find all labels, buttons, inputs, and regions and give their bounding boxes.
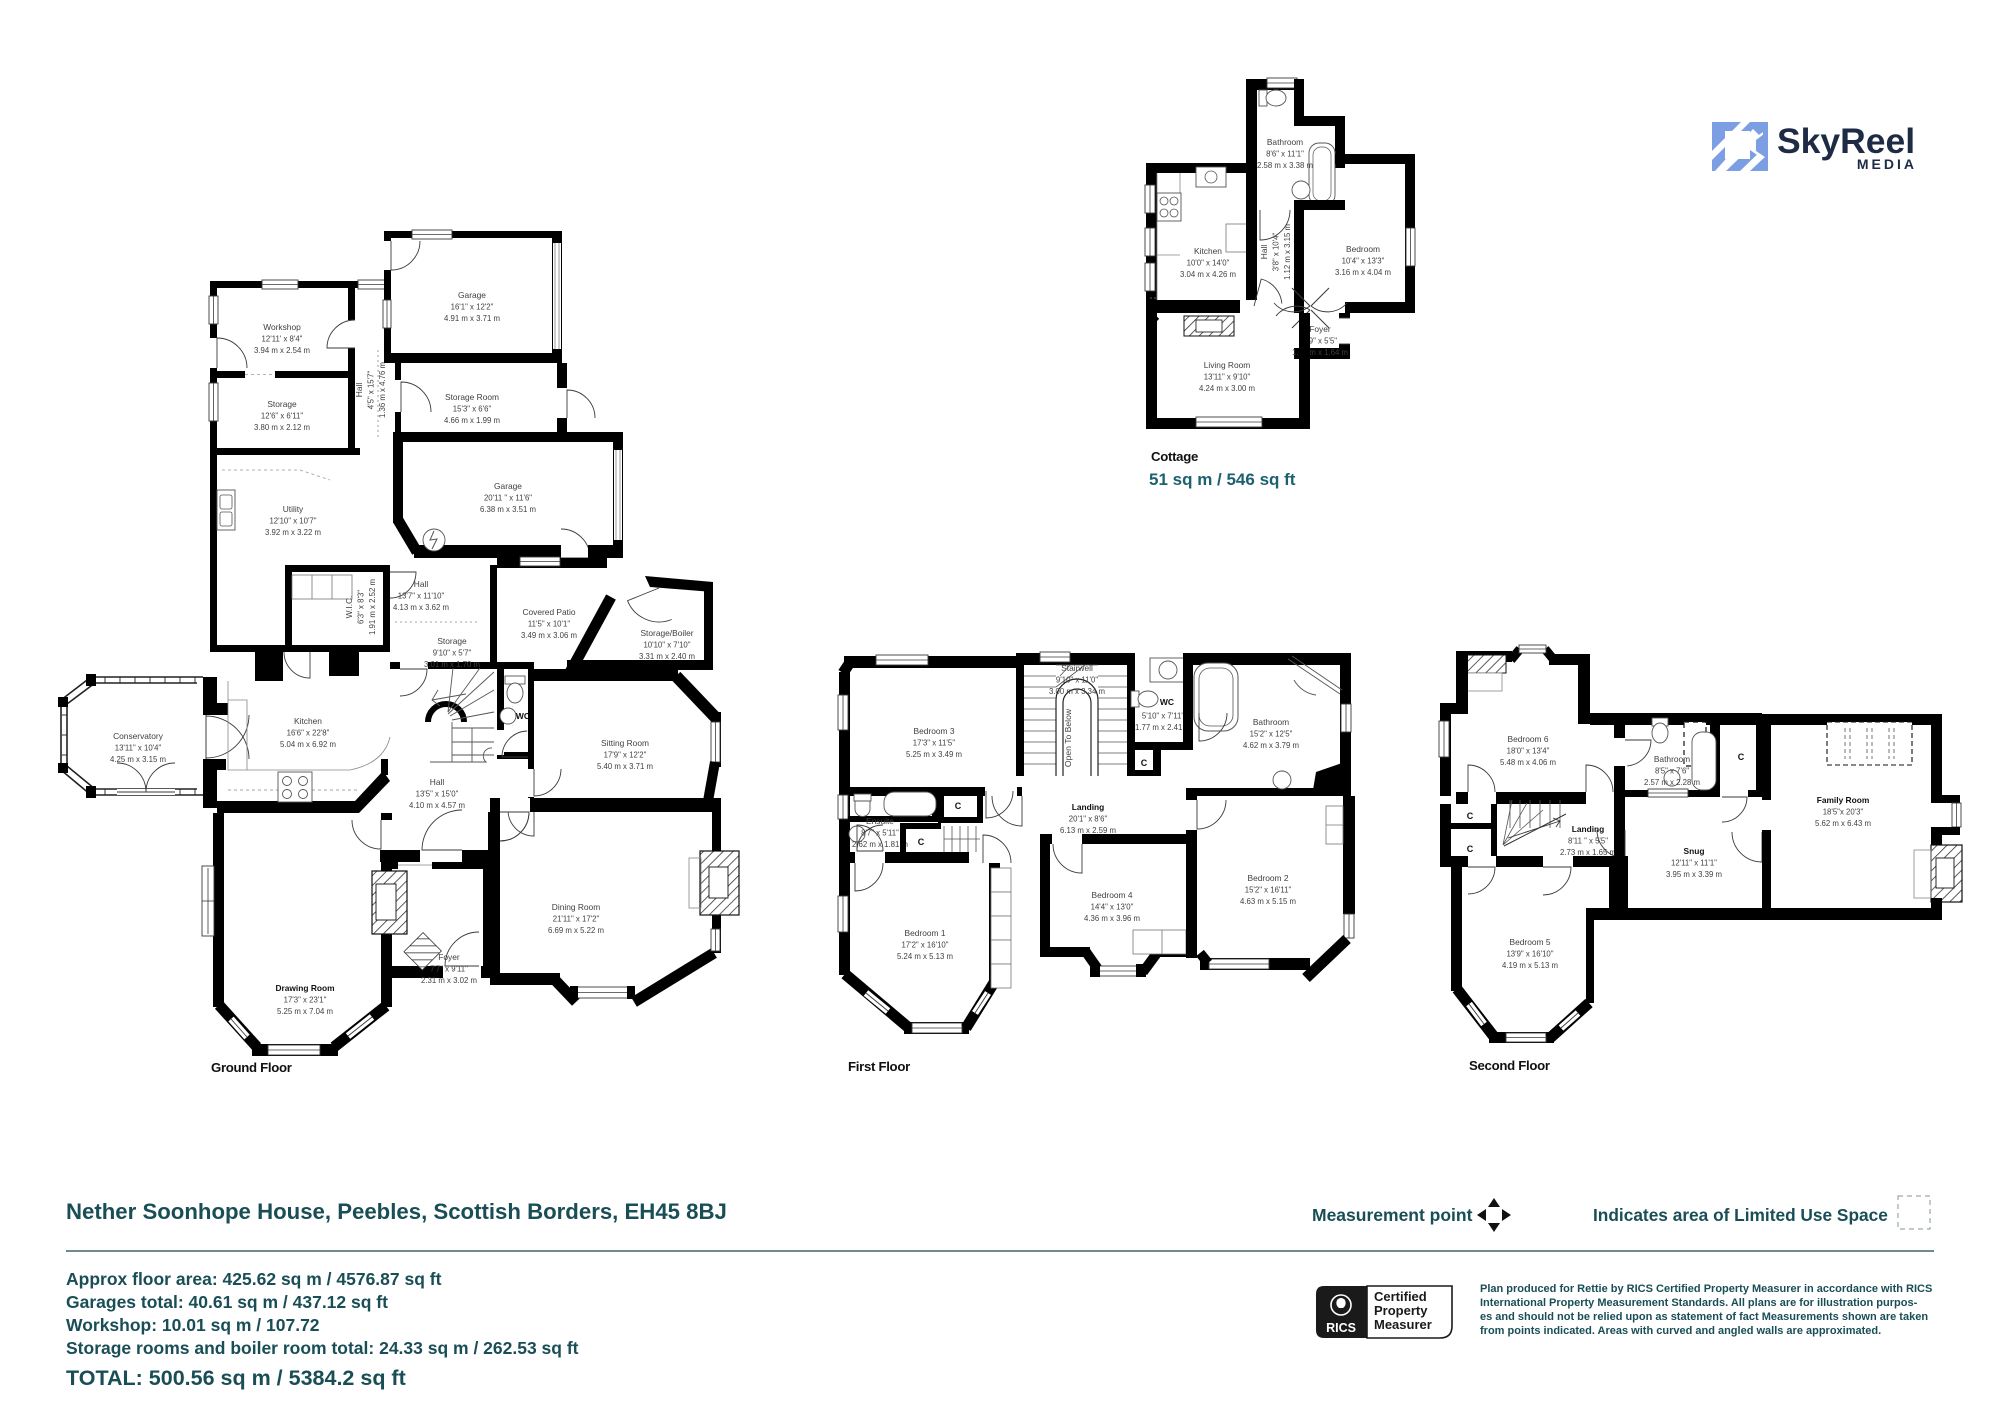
- svg-text:6.69 m x 5.22 m: 6.69 m x 5.22 m: [548, 926, 604, 935]
- svg-text:Conservatory: Conservatory: [113, 731, 164, 741]
- svg-text:3.01 m x 1.70 m: 3.01 m x 1.70 m: [424, 660, 480, 669]
- svg-text:4.24 m x 3.00 m: 4.24 m x 3.00 m: [1199, 384, 1255, 393]
- svg-text:3.31 m x 2.40 m: 3.31 m x 2.40 m: [639, 652, 695, 661]
- svg-text:Second Floor: Second Floor: [1469, 1058, 1550, 1073]
- svg-text:13'5" x 15'0": 13'5" x 15'0": [416, 790, 459, 799]
- svg-text:from points indicated. Areas w: from points indicated. Areas with curved…: [1480, 1325, 1881, 1337]
- svg-text:5.25 m x 7.04 m: 5.25 m x 7.04 m: [277, 1007, 333, 1016]
- svg-text:Hall: Hall: [414, 579, 429, 589]
- svg-text:4.36 m x 3.96 m: 4.36 m x 3.96 m: [1084, 914, 1140, 923]
- svg-text:Cottage: Cottage: [1151, 449, 1198, 464]
- svg-text:51 sq m / 546 sq ft: 51 sq m / 546 sq ft: [1149, 470, 1296, 489]
- svg-text:Snug: Snug: [1684, 846, 1705, 856]
- svg-text:2.62 m x 1.81 m: 2.62 m x 1.81 m: [852, 840, 908, 849]
- svg-text:Certified: Certified: [1374, 1289, 1427, 1304]
- svg-text:17'3" x 23'1": 17'3" x 23'1": [284, 996, 327, 1005]
- svg-text:Utility: Utility: [283, 504, 304, 514]
- svg-text:5.24 m x 5.13 m: 5.24 m x 5.13 m: [897, 952, 953, 961]
- svg-text:Stairwell: Stairwell: [1061, 663, 1093, 673]
- svg-text:5.62 m x 6.43 m: 5.62 m x 6.43 m: [1815, 819, 1871, 828]
- svg-text:12'11" x 11'1": 12'11" x 11'1": [1671, 859, 1717, 868]
- svg-text:Ground Floor: Ground Floor: [211, 1060, 292, 1075]
- svg-text:Nether Soonhope House, Peebles: Nether Soonhope House, Peebles, Scottish…: [66, 1199, 727, 1224]
- svg-text:Measurer: Measurer: [1374, 1317, 1432, 1332]
- svg-text:12'6" x 6'11": 12'6" x 6'11": [261, 412, 303, 421]
- svg-text:4.66 m x 1.99 m: 4.66 m x 1.99 m: [444, 416, 500, 425]
- svg-text:Bedroom 6: Bedroom 6: [1508, 734, 1549, 744]
- svg-text:6'3" x 8'3": 6'3" x 8'3": [357, 590, 366, 624]
- svg-text:10'4" x 13'3": 10'4" x 13'3": [1342, 257, 1385, 266]
- svg-text:18'5"x 20'3": 18'5"x 20'3": [1823, 808, 1864, 817]
- svg-text:Storage: Storage: [437, 636, 467, 646]
- svg-text:Approx floor area: 425.62 sq m: Approx floor area: 425.62 sq m / 4576.87…: [66, 1269, 442, 1289]
- svg-text:Storage: Storage: [267, 399, 297, 409]
- svg-text:15'3" x 6'6": 15'3" x 6'6": [453, 405, 492, 414]
- svg-text:Storage rooms and boiler room: Storage rooms and boiler room total: 24.…: [66, 1338, 579, 1358]
- svg-text:Storage/Boiler: Storage/Boiler: [640, 628, 693, 638]
- svg-text:12'10" x 10'7": 12'10" x 10'7": [269, 517, 316, 526]
- svg-text:WC: WC: [516, 711, 530, 721]
- svg-text:Bedroom 2: Bedroom 2: [1248, 873, 1289, 883]
- svg-text:C: C: [1738, 752, 1745, 762]
- svg-text:TOTAL: 500.56 sq m / 5384.2 sq: TOTAL: 500.56 sq m / 5384.2 sq ft: [66, 1366, 406, 1390]
- svg-text:3.80 m x 2.12 m: 3.80 m x 2.12 m: [254, 423, 310, 432]
- svg-text:15'2" x 16'11": 15'2" x 16'11": [1245, 886, 1292, 895]
- svg-text:Bedroom 4: Bedroom 4: [1092, 890, 1133, 900]
- svg-text:Workshop: Workshop: [263, 322, 301, 332]
- svg-text:Plan produced for Rettie by RI: Plan produced for Rettie by RICS Certifi…: [1480, 1283, 1932, 1295]
- svg-text:14'4" x 13'0": 14'4" x 13'0": [1091, 903, 1134, 912]
- svg-text:Ensuite: Ensuite: [866, 816, 894, 826]
- svg-text:20'11 " x 11'6": 20'11 " x 11'6": [484, 494, 532, 503]
- svg-text:17'2" x 16'10": 17'2" x 16'10": [901, 941, 948, 950]
- svg-text:10'0" x 14'0": 10'0" x 14'0": [1187, 259, 1230, 268]
- svg-text:5'10" x 7'11": 5'10" x 7'11": [1142, 712, 1184, 721]
- svg-text:Garage: Garage: [458, 290, 486, 300]
- svg-text:2.58 m x 3.38 m: 2.58 m x 3.38 m: [1257, 161, 1313, 170]
- svg-text:Landing: Landing: [1072, 802, 1105, 812]
- svg-text:3'8" x 10'4": 3'8" x 10'4": [1272, 233, 1281, 272]
- svg-text:Hall: Hall: [430, 777, 445, 787]
- svg-text:11'5" x 10'1": 11'5" x 10'1": [528, 620, 570, 629]
- svg-text:1.12 m x 3.15 m: 1.12 m x 3.15 m: [1283, 224, 1292, 280]
- svg-text:Hall: Hall: [1259, 245, 1269, 260]
- svg-text:Sitting Room: Sitting Room: [601, 738, 649, 748]
- svg-text:13'11" x 9'10": 13'11" x 9'10": [1204, 373, 1251, 382]
- svg-text:Drawing Room: Drawing Room: [275, 983, 334, 993]
- svg-text:Bedroom 5: Bedroom 5: [1510, 937, 1551, 947]
- svg-text:Open To Below: Open To Below: [1063, 708, 1073, 767]
- svg-text:Kitchen: Kitchen: [294, 716, 322, 726]
- svg-text:6.38 m x 3.51 m: 6.38 m x 3.51 m: [480, 505, 536, 514]
- svg-text:8'5" x 7'6": 8'5" x 7'6": [1655, 767, 1689, 776]
- svg-text:8'11 " x 5'5": 8'11 " x 5'5": [1568, 837, 1608, 846]
- svg-text:Storage Room: Storage Room: [445, 392, 499, 402]
- svg-text:SkyReel: SkyReel: [1777, 121, 1915, 161]
- svg-text:Workshop: 10.01 sq m / 107.72: Workshop: 10.01 sq m / 107.72: [66, 1315, 320, 1335]
- svg-text:International Property Measur: International Property Measurement Stand…: [1480, 1297, 1918, 1309]
- svg-text:C: C: [955, 801, 962, 811]
- svg-text:4.62 m x 3.79 m: 4.62 m x 3.79 m: [1243, 741, 1299, 750]
- svg-text:21'11" x 17'2": 21'11" x 17'2": [553, 915, 600, 924]
- svg-text:Landing: Landing: [1572, 824, 1605, 834]
- svg-text:Living Room: Living Room: [1204, 360, 1251, 370]
- svg-text:4.13 m x 3.62 m: 4.13 m x 3.62 m: [393, 603, 449, 612]
- svg-text:8'7" x 5'11": 8'7" x 5'11": [861, 829, 899, 838]
- svg-text:7'7" x 9'11": 7'7" x 9'11": [430, 965, 468, 974]
- svg-text:Measurement point: Measurement point: [1312, 1205, 1473, 1225]
- svg-text:MEDIA: MEDIA: [1857, 156, 1917, 172]
- svg-text:Bathroom: Bathroom: [1253, 717, 1289, 727]
- svg-text:5.40 m x 3.71 m: 5.40 m x 3.71 m: [597, 762, 653, 771]
- svg-text:3.16 m x 4.04 m: 3.16 m x 4.04 m: [1335, 268, 1391, 277]
- svg-text:Foyer: Foyer: [1309, 324, 1331, 334]
- svg-text:3.00 m x 3.34 m: 3.00 m x 3.34 m: [1049, 687, 1105, 696]
- svg-text:4.10 m x 4.57 m: 4.10 m x 4.57 m: [409, 801, 465, 810]
- svg-text:4.91 m x 3.71 m: 4.91 m x 3.71 m: [444, 314, 500, 323]
- svg-text:4'5" x 15'7": 4'5" x 15'7": [367, 371, 376, 410]
- svg-text:Foyer: Foyer: [438, 952, 460, 962]
- svg-text:10'10" x 7'10": 10'10" x 7'10": [643, 641, 690, 650]
- svg-text:C: C: [1467, 844, 1474, 854]
- svg-text:13'11" x 10'4": 13'11" x 10'4": [115, 744, 162, 753]
- svg-text:3.49 m x 3.06 m: 3.49 m x 3.06 m: [521, 631, 577, 640]
- svg-text:18'0" x 13'4": 18'0" x 13'4": [1507, 747, 1550, 756]
- svg-text:16'6" x 22'8": 16'6" x 22'8": [287, 729, 330, 738]
- svg-text:Hall: Hall: [354, 383, 364, 398]
- svg-text:6.13 m x 2.59 m: 6.13 m x 2.59 m: [1060, 826, 1116, 835]
- svg-text:20'1" x 8'6": 20'1" x 8'6": [1069, 815, 1108, 824]
- svg-text:5.25 m x 3.49 m: 5.25 m x 3.49 m: [906, 750, 962, 759]
- svg-text:13'7" x 11'10": 13'7" x 11'10": [398, 592, 445, 601]
- svg-text:3.94 m x 2.54 m: 3.94 m x 2.54 m: [254, 346, 310, 355]
- svg-text:Property: Property: [1374, 1303, 1428, 1318]
- svg-text:RICS: RICS: [1326, 1321, 1356, 1335]
- svg-text:Indicates area of Limited Use: Indicates area of Limited Use Space: [1593, 1205, 1888, 1225]
- svg-text:3.92 m x 3.22 m: 3.92 m x 3.22 m: [265, 528, 321, 537]
- svg-text:C: C: [918, 837, 925, 847]
- svg-text:8'6" x 11'1": 8'6" x 11'1": [1266, 150, 1304, 159]
- svg-text:5.04 m x 6.92 m: 5.04 m x 6.92 m: [280, 740, 336, 749]
- svg-text:5.48 m x 4.06 m: 5.48 m x 4.06 m: [1500, 758, 1556, 767]
- svg-text:13'9" x 16'10": 13'9" x 16'10": [1506, 950, 1553, 959]
- svg-text:4.63 m x 5.15 m: 4.63 m x 5.15 m: [1240, 897, 1296, 906]
- svg-text:Garage: Garage: [494, 481, 522, 491]
- svg-text:Dining Room: Dining Room: [552, 902, 600, 912]
- svg-text:es and should not be relied up: es and should not be relied upon as stat…: [1480, 1311, 1928, 1323]
- svg-text:15'2" x 12'5": 15'2" x 12'5": [1250, 730, 1293, 739]
- svg-text:Covered Patio: Covered Patio: [522, 607, 575, 617]
- svg-text:Bedroom 3: Bedroom 3: [914, 726, 955, 736]
- svg-text:Garages total: 40.61 sq m / 43: Garages total: 40.61 sq m / 437.12 sq ft: [66, 1292, 388, 1312]
- svg-text:Bedroom 1: Bedroom 1: [905, 928, 946, 938]
- svg-text:17'9" x 12'2": 17'9" x 12'2": [604, 751, 647, 760]
- svg-text:3.95 m x 3.39 m: 3.95 m x 3.39 m: [1666, 870, 1722, 879]
- svg-text:Bathroom: Bathroom: [1267, 137, 1303, 147]
- svg-text:16'1" x 12'2": 16'1" x 12'2": [451, 303, 494, 312]
- svg-text:Family Room: Family Room: [1817, 795, 1870, 805]
- svg-text:4.25 m x 3.15 m: 4.25 m x 3.15 m: [110, 755, 166, 764]
- svg-text:Bedroom: Bedroom: [1346, 244, 1380, 254]
- svg-text:1.77 m x 2.41 m: 1.77 m x 2.41 m: [1135, 723, 1191, 732]
- svg-text:3.04 m x 4.26 m: 3.04 m x 4.26 m: [1180, 270, 1236, 279]
- svg-text:2.57 m x 2.28 m: 2.57 m x 2.28 m: [1644, 778, 1700, 787]
- svg-text:12'11' x 8'4": 12'11' x 8'4": [262, 335, 303, 344]
- svg-text:9'10" x 5'7": 9'10" x 5'7": [433, 649, 472, 658]
- svg-text:W.I.C.: W.I.C.: [344, 596, 354, 619]
- svg-text:4.19 m x 5.13 m: 4.19 m x 5.13 m: [1502, 961, 1558, 970]
- svg-text:2.31 m x 3.02 m: 2.31 m x 3.02 m: [421, 976, 477, 985]
- svg-text:1.36 m x 4.76 m: 1.36 m x 4.76 m: [378, 362, 387, 418]
- svg-text:Bathroom: Bathroom: [1654, 754, 1690, 764]
- svg-text:9'10" x 11'0": 9'10" x 11'0": [1056, 676, 1098, 685]
- svg-text:WC: WC: [1160, 697, 1174, 707]
- svg-text:Kitchen: Kitchen: [1194, 246, 1222, 256]
- svg-text:17'3" x 11'5'': 17'3" x 11'5'': [913, 739, 956, 748]
- svg-text:C: C: [1141, 758, 1148, 768]
- svg-text:First Floor: First Floor: [848, 1059, 910, 1074]
- svg-text:1.91 m x 2.52 m: 1.91 m x 2.52 m: [368, 579, 377, 635]
- svg-text:C: C: [1467, 811, 1474, 821]
